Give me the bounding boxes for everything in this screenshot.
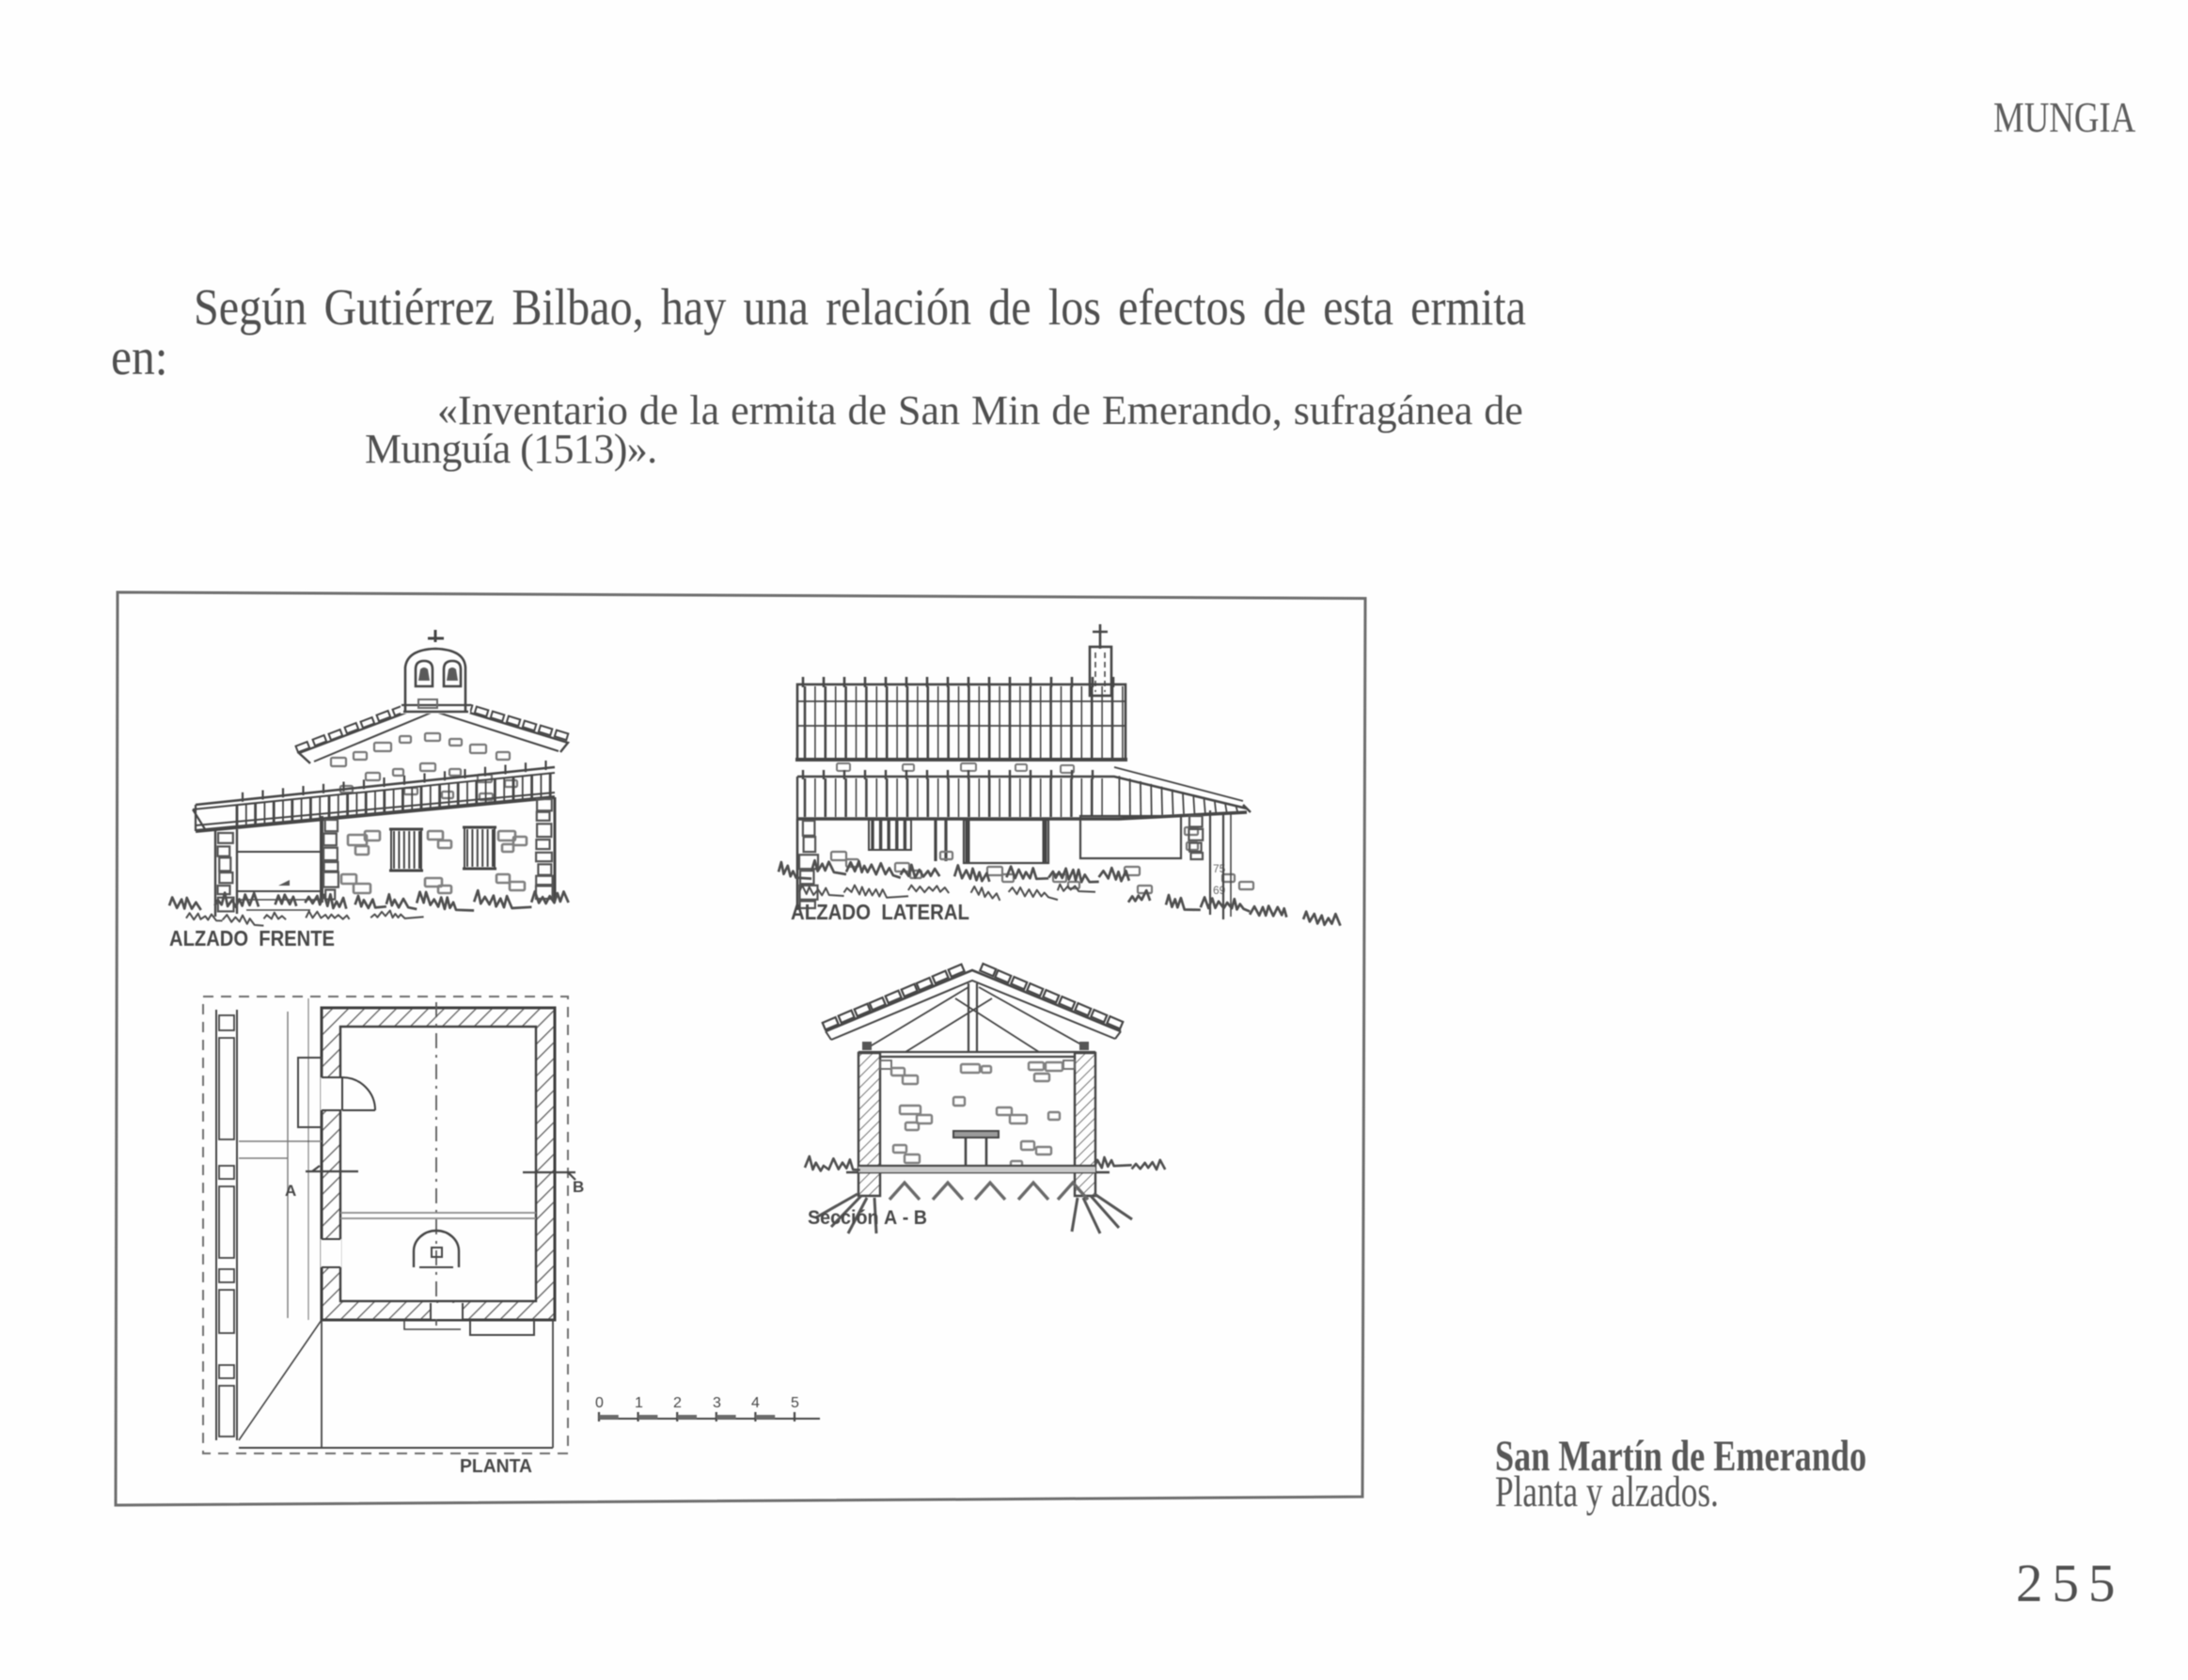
svg-text:A: A bbox=[285, 1182, 296, 1200]
svg-text:2: 2 bbox=[673, 1395, 682, 1411]
svg-text:PLANTA: PLANTA bbox=[460, 1456, 532, 1477]
svg-text:4: 4 bbox=[751, 1395, 760, 1411]
svg-text:ALZADO LATERAL: ALZADO LATERAL bbox=[791, 900, 969, 924]
svg-text:1: 1 bbox=[635, 1395, 643, 1411]
svg-text:ALZADO FRENTE: ALZADO FRENTE bbox=[169, 926, 335, 950]
svg-text:5: 5 bbox=[791, 1395, 799, 1411]
svg-text:B: B bbox=[573, 1178, 584, 1196]
svg-text:3: 3 bbox=[713, 1395, 721, 1411]
svg-text:0: 0 bbox=[595, 1395, 604, 1411]
svg-text:Sección A - B: Sección A - B bbox=[808, 1207, 927, 1229]
